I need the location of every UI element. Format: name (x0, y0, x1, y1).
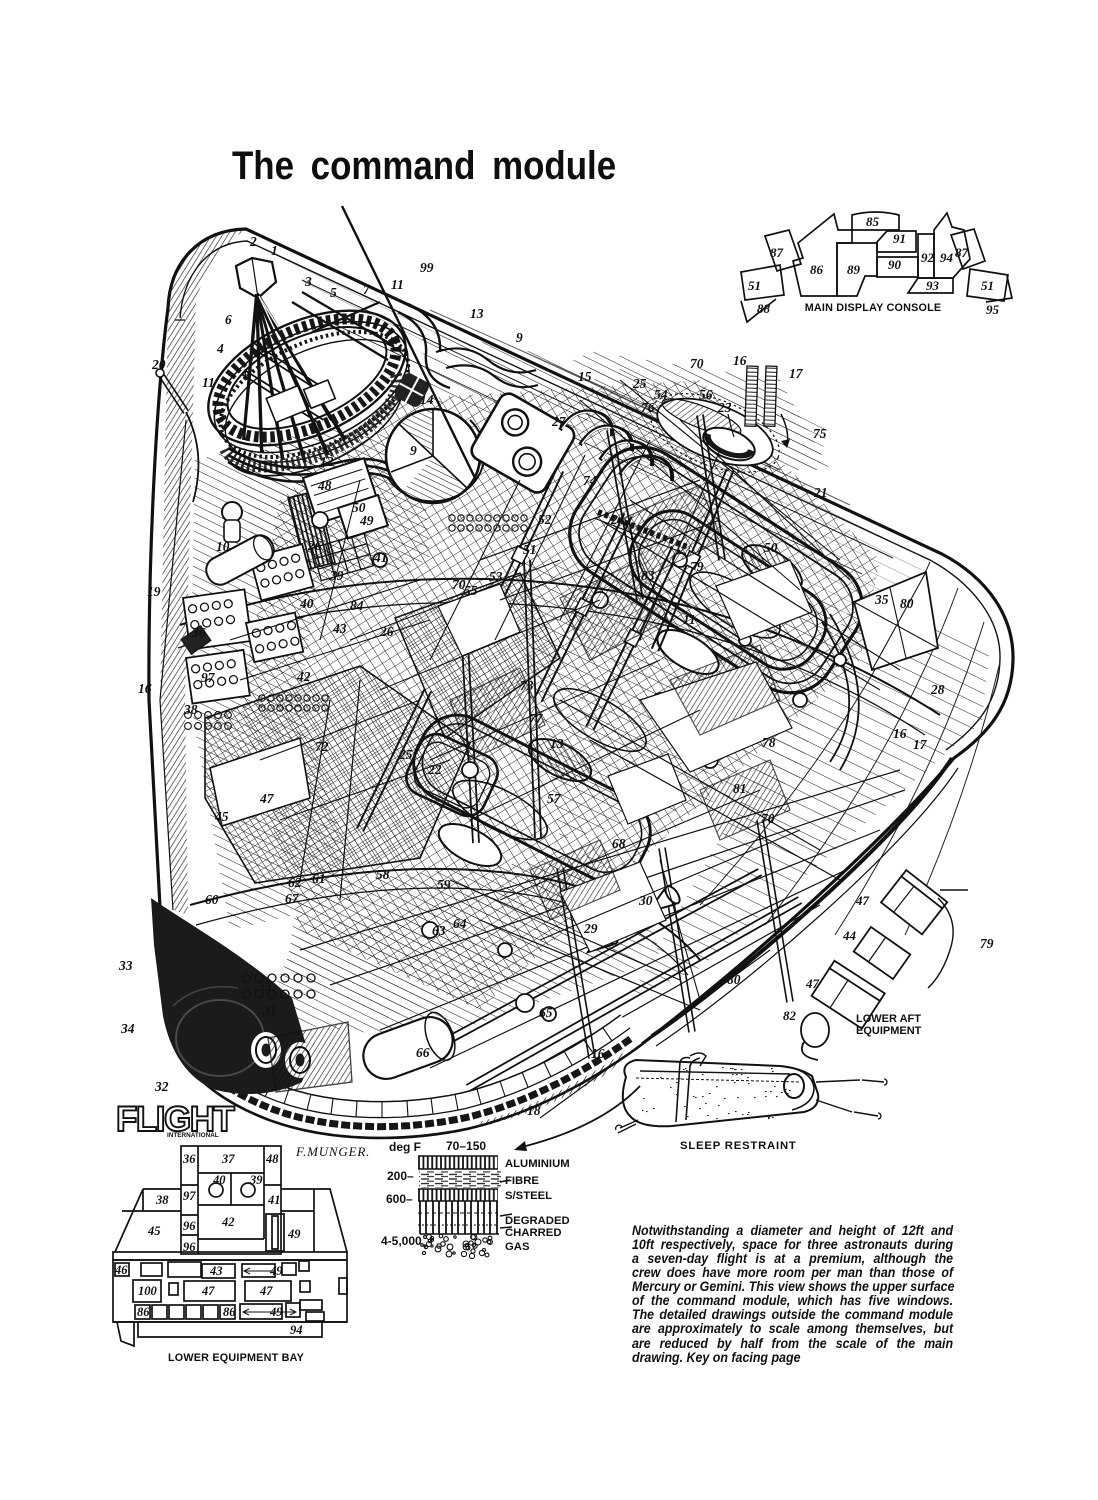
svg-text:58: 58 (376, 867, 390, 882)
svg-text:86: 86 (137, 1305, 150, 1319)
svg-text:12: 12 (320, 454, 334, 469)
svg-text:23: 23 (717, 400, 732, 415)
svg-text:45: 45 (214, 809, 229, 824)
svg-text:62: 62 (288, 875, 302, 890)
svg-text:F.MUNGER.: F.MUNGER. (295, 1144, 370, 1159)
svg-text:95: 95 (986, 302, 1000, 317)
svg-text:72: 72 (315, 739, 329, 754)
svg-text:67: 67 (285, 891, 300, 906)
svg-text:56: 56 (699, 387, 713, 402)
svg-text:53: 53 (489, 569, 503, 584)
svg-text:2: 2 (249, 234, 257, 249)
svg-text:94: 94 (290, 1323, 303, 1337)
svg-text:S/STEEL: S/STEEL (505, 1190, 552, 1202)
svg-text:39: 39 (249, 1173, 263, 1187)
svg-text:200–: 200– (387, 1169, 414, 1183)
svg-text:37: 37 (221, 1152, 235, 1166)
svg-text:49: 49 (287, 1227, 301, 1241)
svg-text:81: 81 (733, 781, 747, 796)
svg-text:47: 47 (805, 976, 820, 991)
svg-text:73: 73 (520, 678, 534, 693)
svg-text:LOWER AFT: LOWER AFT (856, 1013, 921, 1025)
svg-text:80: 80 (727, 972, 741, 987)
svg-text:77: 77 (529, 711, 544, 726)
svg-text:55: 55 (464, 583, 478, 598)
svg-text:70–150: 70–150 (446, 1139, 486, 1153)
svg-text:59: 59 (437, 877, 451, 892)
svg-text:42: 42 (221, 1215, 235, 1229)
svg-text:SLEEP RESTRAINT: SLEEP RESTRAINT (680, 1140, 797, 1152)
svg-text:34: 34 (120, 1021, 135, 1036)
svg-text:87: 87 (770, 245, 784, 260)
svg-text:57: 57 (547, 791, 562, 806)
svg-text:39: 39 (329, 568, 344, 583)
svg-text:74: 74 (583, 473, 597, 488)
svg-text:50: 50 (764, 540, 778, 555)
svg-text:97: 97 (201, 670, 216, 685)
svg-text:11: 11 (202, 375, 215, 390)
svg-text:600–: 600– (386, 1192, 413, 1206)
svg-text:32: 32 (154, 1079, 169, 1094)
svg-text:35: 35 (257, 979, 272, 994)
svg-text:deg F: deg F (389, 1140, 421, 1154)
svg-text:16: 16 (591, 1046, 605, 1061)
svg-text:17: 17 (789, 366, 804, 381)
svg-text:99: 99 (420, 260, 434, 275)
svg-text:43: 43 (332, 621, 347, 636)
svg-text:66: 66 (416, 1045, 430, 1060)
svg-text:13: 13 (550, 736, 564, 751)
svg-text:49: 49 (359, 513, 374, 528)
svg-text:93: 93 (926, 278, 940, 293)
svg-text:35: 35 (874, 592, 889, 607)
svg-text:41: 41 (267, 1193, 281, 1207)
svg-text:63: 63 (432, 923, 446, 938)
svg-text:70: 70 (690, 356, 704, 371)
svg-text:92: 92 (921, 250, 935, 265)
svg-text:100: 100 (138, 1284, 158, 1298)
svg-text:41: 41 (373, 550, 388, 565)
svg-text:90: 90 (888, 257, 902, 272)
svg-text:6: 6 (225, 312, 232, 327)
svg-text:40: 40 (212, 1173, 226, 1187)
svg-text:4: 4 (216, 341, 224, 356)
svg-text:84: 84 (350, 598, 364, 613)
svg-text:9: 9 (516, 330, 523, 345)
svg-text:86: 86 (810, 262, 824, 277)
svg-text:61: 61 (312, 871, 326, 886)
svg-text:44: 44 (842, 928, 857, 943)
svg-text:83: 83 (641, 568, 655, 583)
svg-text:4-5,000: 4-5,000 (381, 1234, 422, 1248)
svg-text:16: 16 (893, 726, 907, 741)
svg-text:47: 47 (855, 893, 870, 908)
svg-text:46: 46 (114, 1263, 128, 1277)
svg-text:48: 48 (317, 478, 332, 493)
svg-text:24: 24 (610, 512, 625, 527)
svg-text:33: 33 (118, 958, 133, 973)
svg-text:16: 16 (138, 681, 152, 696)
svg-text:47: 47 (259, 791, 275, 806)
svg-text:CHARRED: CHARRED (505, 1227, 562, 1239)
svg-text:11: 11 (683, 612, 696, 627)
svg-text:9: 9 (410, 443, 417, 458)
svg-text:42: 42 (296, 669, 311, 684)
svg-text:97: 97 (183, 1189, 196, 1203)
svg-text:54: 54 (654, 387, 668, 402)
svg-text:10: 10 (216, 539, 230, 554)
svg-text:60: 60 (205, 892, 219, 907)
svg-text:64: 64 (453, 916, 467, 931)
svg-text:8: 8 (243, 368, 250, 383)
svg-text:22: 22 (427, 762, 442, 777)
svg-text:DEGRADED: DEGRADED (505, 1215, 570, 1227)
svg-text:91: 91 (893, 231, 906, 246)
svg-text:47: 47 (259, 1284, 273, 1298)
svg-text:18: 18 (527, 1103, 541, 1118)
svg-text:40: 40 (299, 596, 314, 611)
svg-text:27: 27 (551, 414, 567, 429)
svg-text:31: 31 (262, 1003, 277, 1018)
svg-text:43: 43 (209, 1264, 223, 1278)
svg-text:5: 5 (330, 285, 337, 300)
svg-text:3: 3 (304, 274, 312, 289)
svg-text:11: 11 (391, 277, 404, 292)
svg-text:13: 13 (470, 306, 484, 321)
svg-text:48: 48 (265, 1152, 279, 1166)
svg-text:17: 17 (913, 737, 928, 752)
svg-text:89: 89 (847, 262, 861, 277)
svg-text:ALUMINIUM: ALUMINIUM (505, 1158, 570, 1170)
svg-text:38: 38 (183, 702, 198, 717)
svg-text:80: 80 (900, 596, 914, 611)
svg-text:21: 21 (813, 485, 828, 500)
svg-text:94: 94 (940, 250, 954, 265)
svg-text:FIBRE: FIBRE (505, 1175, 539, 1187)
svg-text:82: 82 (783, 1008, 797, 1023)
svg-text:26: 26 (307, 538, 322, 553)
svg-text:15: 15 (578, 369, 592, 384)
svg-text:INTERNATIONAL: INTERNATIONAL (167, 1132, 219, 1139)
svg-text:85: 85 (866, 214, 880, 229)
svg-text:88: 88 (757, 301, 771, 316)
svg-text:65: 65 (539, 1005, 553, 1020)
svg-text:68: 68 (612, 836, 626, 851)
svg-text:96: 96 (183, 1240, 196, 1254)
svg-text:MAIN DISPLAY CONSOLE: MAIN DISPLAY CONSOLE (805, 302, 942, 314)
svg-text:79: 79 (980, 936, 994, 951)
svg-text:EQUIPMENT: EQUIPMENT (856, 1025, 922, 1037)
svg-text:76: 76 (641, 400, 655, 415)
svg-text:45: 45 (147, 1224, 161, 1238)
svg-text:30: 30 (638, 893, 653, 908)
svg-text:20: 20 (151, 357, 166, 372)
svg-text:19: 19 (147, 584, 161, 599)
svg-text:LOWER EQUIPMENT BAY: LOWER EQUIPMENT BAY (168, 1352, 305, 1364)
svg-text:28: 28 (930, 682, 945, 697)
svg-text:75: 75 (813, 426, 827, 441)
svg-text:16: 16 (733, 353, 747, 368)
svg-text:87: 87 (955, 245, 969, 260)
svg-text:47: 47 (201, 1284, 215, 1298)
svg-text:96: 96 (183, 1219, 196, 1233)
svg-text:36: 36 (191, 625, 206, 640)
svg-text:51: 51 (523, 542, 537, 557)
svg-text:70: 70 (761, 811, 775, 826)
svg-text:38: 38 (155, 1193, 169, 1207)
svg-text:51: 51 (981, 278, 994, 293)
svg-text:GAS: GAS (505, 1241, 530, 1253)
svg-text:86: 86 (223, 1305, 236, 1319)
svg-text:25: 25 (632, 376, 647, 391)
svg-text:36: 36 (182, 1152, 196, 1166)
svg-text:25: 25 (398, 747, 413, 762)
svg-text:14: 14 (420, 392, 434, 407)
svg-text:1: 1 (271, 243, 278, 258)
svg-text:51: 51 (748, 278, 761, 293)
svg-text:52: 52 (538, 512, 552, 527)
svg-text:29: 29 (583, 921, 598, 936)
svg-text:26: 26 (379, 624, 394, 639)
svg-text:79: 79 (690, 559, 704, 574)
svg-text:78: 78 (762, 735, 776, 750)
